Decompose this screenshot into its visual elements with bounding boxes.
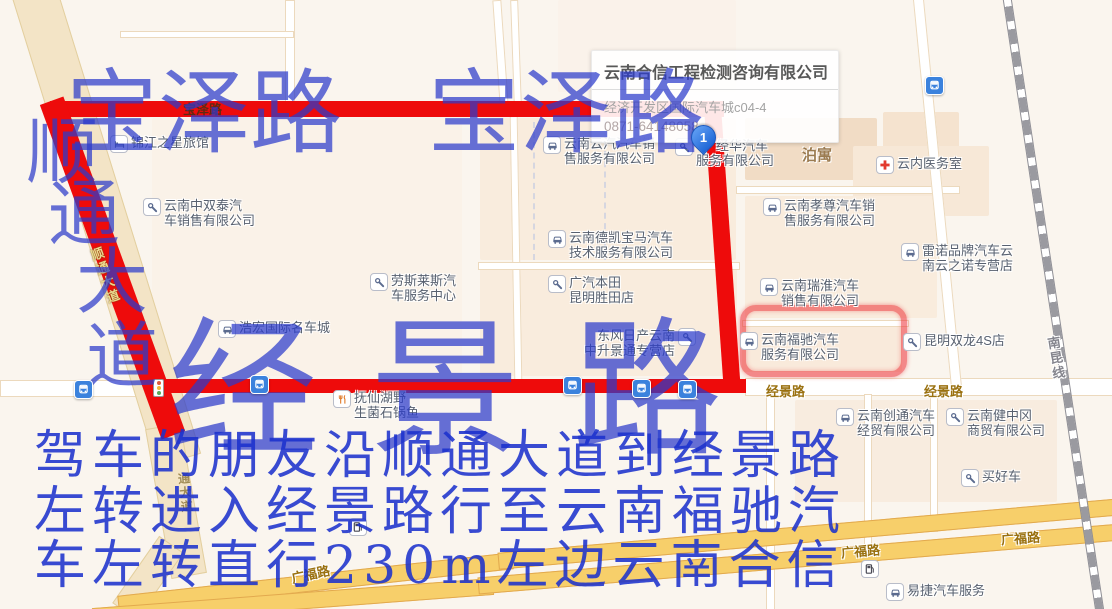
map-poi: 云内医务室 — [876, 156, 962, 174]
bus-stop-icon[interactable] — [632, 379, 651, 398]
map-poi-label: 劳斯莱斯汽车服务中心 — [391, 273, 456, 303]
car-icon — [901, 243, 919, 261]
map-poi-label: 昆明双龙4S店 — [924, 333, 1005, 348]
map-poi: 雷诺品牌汽车云南云之诺专营店 — [901, 243, 1013, 273]
wrench-icon — [961, 469, 979, 487]
road — [478, 262, 740, 270]
wrench-icon — [946, 408, 964, 426]
map-poi: 易捷汽车服务 — [886, 583, 985, 601]
map-poi: 云南创通汽车经贸有限公司 — [836, 408, 935, 438]
wrench-icon — [143, 198, 161, 216]
map-poi: 云南瑞淮汽车销售有限公司 — [760, 278, 859, 308]
map-poi-label: 云南瑞淮汽车销售有限公司 — [781, 278, 859, 308]
bus-stop-icon[interactable] — [678, 380, 697, 399]
map-poi-label: 云南健中冈商贸有限公司 — [967, 408, 1045, 438]
wrench-icon — [370, 273, 388, 291]
bus-stop-icon[interactable] — [925, 76, 944, 95]
wrench-icon — [548, 275, 566, 293]
map-poi: 广汽本田昆明胜田店 — [548, 275, 634, 305]
directions-text-line-3: 车左转直行230m左边云南合信 — [34, 540, 845, 592]
road-label: 南昆线 — [1043, 335, 1069, 382]
map-poi: 昆明双龙4S店 — [903, 333, 1005, 351]
car-icon — [836, 408, 854, 426]
watermark-shuntong-avenue-char: 大 — [76, 246, 148, 318]
map-poi: 云南德凯宝马汽车技术服务有限公司 — [548, 230, 673, 260]
bus-stop-icon[interactable] — [250, 375, 269, 394]
car-icon — [763, 198, 781, 216]
car-icon — [548, 230, 566, 248]
road — [736, 186, 960, 194]
map-poi: 云南孝尊汽车销售服务有限公司 — [763, 198, 875, 228]
road-label: 经景路 — [924, 381, 963, 400]
bus-stop-icon[interactable] — [563, 376, 582, 395]
cross-icon — [876, 156, 894, 174]
map-marker-label: 1 — [692, 126, 715, 149]
watermark-baoze-road-right: 宝泽路 — [428, 68, 704, 160]
gas-station-icon — [861, 560, 879, 578]
watermark-baoze-road-left: 宝泽路 — [66, 68, 342, 160]
map-poi-label: 云南孝尊汽车销售服务有限公司 — [784, 198, 875, 228]
map-poi: 劳斯莱斯汽车服务中心 — [370, 273, 456, 303]
directions-text-line-1: 驾车的朋友沿顺通大道到经景路 — [34, 430, 846, 482]
map-poi-label: 云南德凯宝马汽车技术服务有限公司 — [569, 230, 673, 260]
map-poi: 云南中双泰汽车销售有限公司 — [143, 198, 255, 228]
road-label: 广福路 — [840, 539, 881, 561]
map-poi-label: 云南中双泰汽车销售有限公司 — [164, 198, 255, 228]
map-poi-label: 买好车 — [982, 469, 1021, 484]
road — [120, 31, 294, 38]
map-poi-label: 易捷汽车服务 — [907, 583, 985, 598]
map-poi: 买好车 — [961, 469, 1021, 487]
car-icon — [760, 278, 778, 296]
map-poi-label: 广汽本田昆明胜田店 — [569, 275, 634, 305]
road-label: 广福路 — [1000, 527, 1040, 549]
area-label: 泊寓 — [802, 144, 832, 165]
map-poi-label: 雷诺品牌汽车云南云之诺专营店 — [922, 243, 1013, 273]
watermark-shuntong-avenue-char: 道 — [86, 320, 158, 392]
map-poi-label: 云南创通汽车经贸有限公司 — [857, 408, 935, 438]
map-canvas[interactable]: 云南合信工程检测咨询有限公司 经济开发区国际汽车城c04-4 0871-6414… — [0, 0, 1112, 609]
wrench-icon — [903, 333, 921, 351]
map-poi: 云南健中冈商贸有限公司 — [946, 408, 1045, 438]
car-icon — [886, 583, 904, 601]
bus-stop-icon[interactable] — [74, 380, 93, 399]
directions-text-line-2: 左转进入经景路行至云南福驰汽 — [34, 486, 846, 538]
map-poi-label: 云内医务室 — [897, 156, 962, 171]
